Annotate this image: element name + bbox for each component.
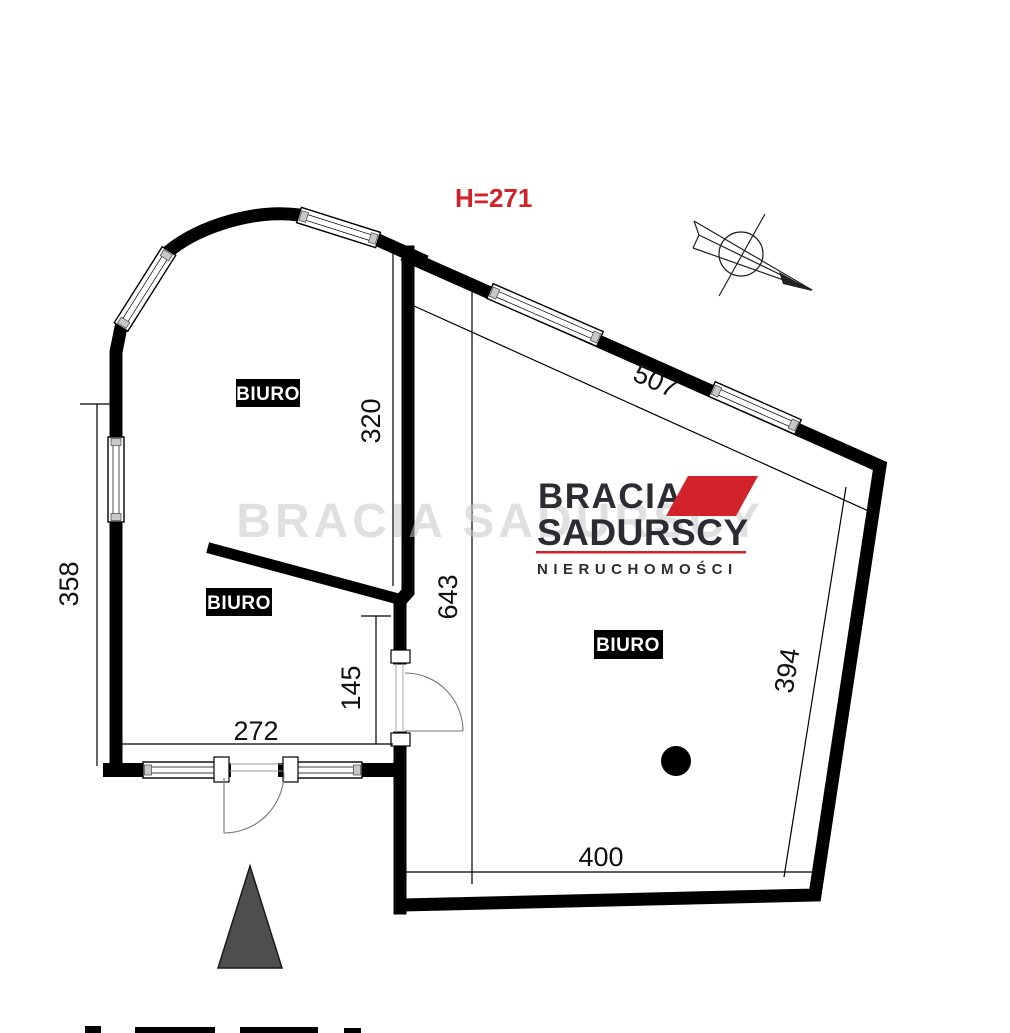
window-symbol-part: [354, 765, 361, 775]
window-symbol-part: [145, 765, 152, 775]
window-symbol-part: [108, 437, 124, 522]
window-symbol-part: [709, 382, 801, 435]
door-frame-cap: [391, 650, 410, 663]
dim-label-394: 394: [769, 646, 806, 695]
north-arrow-icon: [693, 214, 812, 296]
room-label-3: BIURO: [594, 630, 663, 659]
logo-line1: BRACIA: [538, 477, 683, 516]
window-symbol-part: [297, 207, 381, 247]
window-symbol: [114, 247, 176, 332]
left-unit-outer-wall: [116, 214, 420, 770]
dim-label-145: 145: [336, 665, 366, 710]
door-frame-cap: [283, 757, 298, 782]
dimension-labels: 320 358 272 145 643 507 394 400: [54, 358, 805, 872]
walls: [110, 214, 880, 908]
dim-label-643: 643: [433, 574, 463, 619]
entry-door: [214, 757, 298, 833]
ceiling-height-label: H=271: [455, 183, 532, 213]
window-symbol: [709, 382, 801, 435]
window-symbol-part: [111, 439, 121, 446]
dim-label-272: 272: [233, 716, 278, 746]
floorplan-canvas: 320 358 272 145 643 507 394 400 H=271 BI…: [0, 0, 1010, 1033]
window-symbol-part: [120, 251, 166, 324]
window-symbol-part: [125, 254, 171, 327]
north-triangle-marker: [218, 866, 282, 968]
dim-label-400: 400: [578, 842, 623, 872]
window-symbol-part: [143, 762, 224, 778]
column-dot: [661, 746, 691, 776]
cropped-bottom-artifacts: [85, 1026, 361, 1033]
dimension-lines: [80, 253, 873, 884]
room-label-2: BIURO: [206, 588, 272, 616]
window-symbol-part: [491, 295, 597, 341]
bracia-sadurscy-logo: BRACIA SADURSCY NIERUCHOMOŚCI: [536, 476, 758, 578]
dim-label-320: 320: [356, 398, 386, 443]
window-symbol-part: [493, 289, 599, 335]
window-symbol: [487, 284, 603, 347]
door-frame-cap: [391, 733, 410, 746]
window-symbol-part: [487, 284, 603, 347]
window-symbol: [143, 762, 224, 778]
right-unit-outer-wall: [404, 257, 880, 905]
room-label-1: BIURO: [236, 379, 300, 407]
window-symbol: [297, 207, 381, 247]
logo-tagline: NIERUCHOMOŚCI: [537, 560, 738, 578]
window-symbol-part: [111, 514, 121, 521]
logo-line2: SADURSCY: [537, 512, 749, 553]
logo-divider: [536, 551, 746, 554]
room-label-text: BIURO: [596, 635, 660, 656]
dim-label-358: 358: [54, 561, 84, 606]
door-frame-cap: [214, 757, 229, 782]
room-label-text: BIURO: [207, 593, 271, 614]
door-swing-arc: [405, 673, 463, 731]
room-label-text: BIURO: [236, 384, 300, 405]
interior-wall: [400, 252, 408, 908]
door-swing-arc: [224, 773, 284, 833]
window-symbol: [108, 437, 124, 522]
